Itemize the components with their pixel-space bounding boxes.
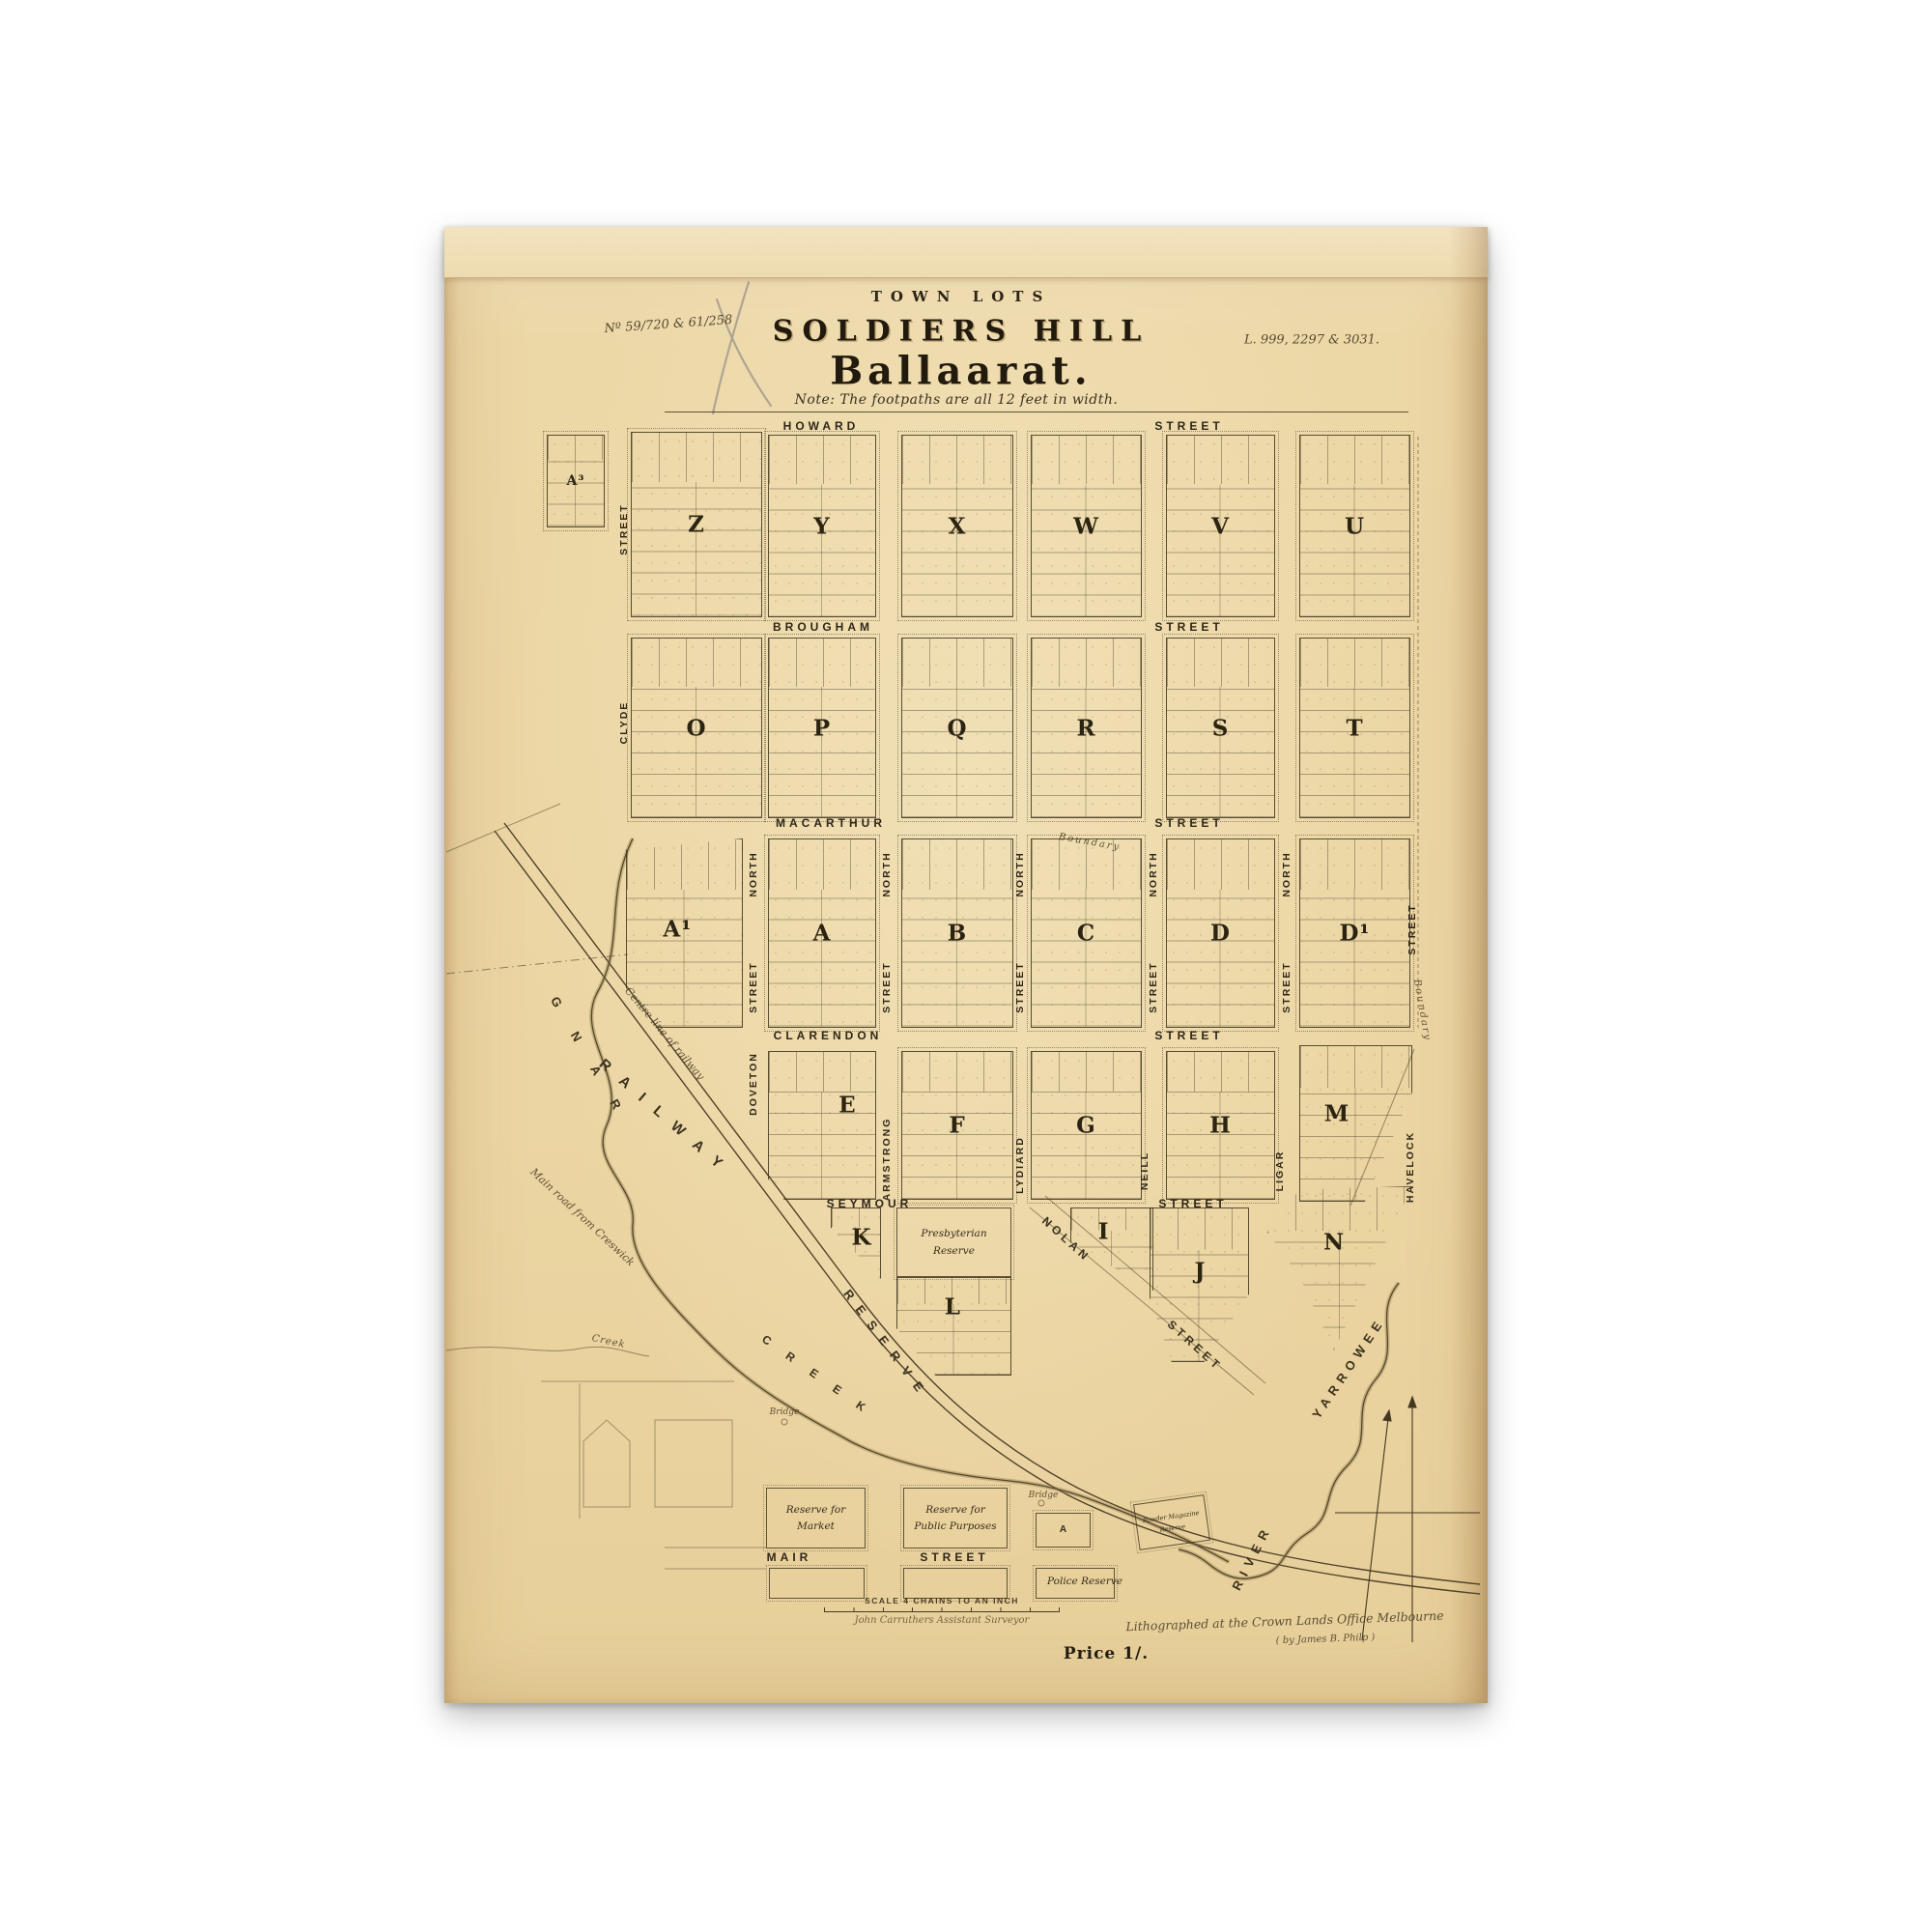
block-o: O (631, 638, 762, 818)
powder-magazine-reserve-label: Reserve (1159, 1521, 1186, 1535)
reserve-for-public-purposes: Reserve forPublic Purposes (903, 1488, 1008, 1548)
a-small-block: A (1036, 1513, 1091, 1548)
street-label-north-2: NORTH (881, 851, 893, 896)
reserve-for-public-purposes-label: Reserve for (925, 1502, 984, 1518)
block-letter-o: O (686, 715, 706, 741)
block-d: D (1166, 838, 1275, 1028)
block-letter-j: J (1195, 1258, 1207, 1284)
block-letter-v: V (1211, 513, 1230, 539)
street-label-street-v-1: STREET (748, 961, 759, 1012)
presbyterian-reserve-label: Presbyterian (921, 1226, 986, 1241)
presbyterian-reserve-label: Reserve (933, 1243, 975, 1259)
block-letter-s: S (1212, 715, 1230, 741)
block-h: H (1166, 1051, 1275, 1200)
block-e: E (768, 1051, 876, 1200)
block-y: Y (768, 435, 876, 617)
mair-block-3 (1036, 1568, 1115, 1599)
street-label-north-4: NORTH (1148, 851, 1159, 896)
block-letter-h: H (1209, 1113, 1232, 1139)
street-label-north-1: NORTH (748, 851, 759, 896)
block-a3: A³ (547, 435, 605, 527)
block-letter-c: C (1077, 921, 1095, 947)
reserve-for-market: Reserve forMarket (766, 1488, 866, 1548)
block-letter-q: Q (947, 715, 967, 741)
block-s: S (1166, 638, 1275, 818)
street-label-ligar: LIGAR (1274, 1151, 1286, 1192)
block-a: A (768, 838, 876, 1028)
street-label-seymour: SEYMOUR (827, 1197, 913, 1210)
thin-line-top-left (446, 804, 560, 852)
block-x: X (901, 435, 1013, 617)
a-small-block-label: A (1060, 1522, 1066, 1538)
block-v: V (1166, 435, 1275, 617)
block-letter-x: X (949, 513, 967, 539)
block-w: W (1031, 435, 1142, 617)
header-rule (665, 412, 1408, 412)
block-letter-a1: A¹ (663, 917, 692, 943)
block-u: U (1299, 435, 1410, 617)
block-letter-i: I (1098, 1218, 1110, 1244)
street-label-brougham-street-word: STREET (1154, 620, 1223, 634)
street-label-street-v-5: STREET (1281, 961, 1293, 1012)
survey-dash-line (446, 954, 628, 974)
scale-bar: SCALE 4 CHAINS TO AN INCH John Carruther… (824, 1596, 1060, 1626)
reserve-for-public-purposes-label: Public Purposes (914, 1519, 996, 1534)
price-label: Price 1/. (1064, 1644, 1149, 1663)
street-label-street-v-2: STREET (881, 961, 893, 1012)
reserve-for-market-label: Reserve for (786, 1502, 845, 1518)
street-label-seymour-street-word: STREET (1158, 1197, 1227, 1210)
north-arrow (1335, 1397, 1480, 1642)
street-label-clarendon-street-word: STREET (1154, 1029, 1223, 1042)
block-d1: D¹ (1299, 838, 1410, 1028)
surveyor-signature: John Carruthers Assistant Surveyor (824, 1615, 1060, 1626)
block-letter-a: A (813, 921, 832, 947)
block-r: R (1031, 638, 1142, 818)
block-letter-n: N (1323, 1230, 1345, 1256)
block-c: C (1031, 838, 1142, 1028)
street-label-mair: MAIR (767, 1550, 812, 1564)
street-label-havelock: HAVELOCK (1405, 1131, 1416, 1203)
block-letter-y: Y (813, 513, 830, 539)
street-label-north-3: NORTH (1014, 851, 1026, 896)
street-label-north-5: NORTH (1281, 851, 1293, 896)
street-label-neill: NEILL (1139, 1151, 1151, 1190)
block-letter-k: K (852, 1225, 872, 1251)
street-label-street-v-3: STREET (1014, 961, 1026, 1012)
block-letter-g: G (1076, 1113, 1096, 1139)
pencil-mark (713, 282, 771, 413)
block-b: B (901, 838, 1013, 1028)
map-title: SOLDIERS HILL (773, 315, 1150, 349)
block-p: P (768, 638, 876, 818)
street-label-macarthur: MACARTHUR (776, 816, 886, 830)
block-f: F (901, 1051, 1013, 1200)
street-label-howard-street-word: STREET (1154, 419, 1223, 433)
street-label-mair-street-word: STREET (920, 1550, 988, 1564)
label-bridge-2: Bridge (1029, 1491, 1059, 1500)
street-label-lydiard: LYDIARD (1014, 1136, 1026, 1194)
block-letter-b: B (948, 921, 967, 947)
label-bridge-1: Bridge (770, 1407, 800, 1417)
block-letter-l: L (945, 1294, 961, 1321)
footpath-note: Note: The footpaths are all 12 feet in w… (795, 392, 1119, 408)
block-letter-d1: D¹ (1339, 921, 1370, 947)
block-letter-e: E (838, 1092, 857, 1118)
mair-block-2 (903, 1568, 1008, 1599)
block-letter-r: R (1076, 715, 1095, 741)
block-letter-a3: A³ (567, 473, 585, 489)
block-t: T (1299, 638, 1410, 818)
street-label-street-v-4: STREET (1148, 961, 1159, 1012)
street-label-howard: HOWARD (783, 419, 860, 433)
street-label-armstrong: ARMSTRONG (881, 1118, 893, 1202)
map-subtitle: Ballaarat. (830, 349, 1092, 394)
street-label-macarthur-street-word: STREET (1154, 816, 1223, 830)
map-content: Nº 59/720 & 61/258 TOWN LOTS SOLDIERS HI… (0, 0, 1932, 1932)
block-letter-p: P (813, 715, 831, 741)
block-q: Q (901, 638, 1013, 818)
street-label-brougham: BROUGHAM (773, 620, 873, 634)
scale-bar-line (824, 1607, 1060, 1612)
reserve-for-market-label: Market (797, 1519, 835, 1534)
street-label-doveton: DOVETON (748, 1052, 759, 1116)
street-label-boundary-street-word: STREET (1406, 903, 1418, 954)
street-label-clyde-street-word: STREET (618, 503, 630, 554)
screenshot-canvas: Nº 59/720 & 61/258 TOWN LOTS SOLDIERS HI… (0, 0, 1932, 1932)
block-letter-t: T (1346, 715, 1363, 741)
mair-block-1 (769, 1568, 865, 1599)
block-letter-z: Z (688, 512, 705, 538)
bottom-left-lots (541, 1381, 766, 1569)
block-letter-w: W (1073, 513, 1099, 539)
block-letter-u: U (1345, 513, 1365, 539)
title-kicker: TOWN LOTS (871, 288, 1052, 305)
block-letter-d: D (1210, 921, 1231, 947)
presbyterian-reserve: PresbyterianReserve (896, 1207, 1011, 1277)
block-letter-f: F (949, 1113, 965, 1139)
street-label-clyde: CLYDE (618, 701, 630, 745)
block-z: Z (631, 432, 762, 617)
block-g: G (1031, 1051, 1142, 1200)
powder-magazine-reserve: Powder MagazineReserve (1133, 1494, 1210, 1550)
street-label-clarendon: CLARENDON (774, 1029, 883, 1042)
block-letter-m: M (1324, 1101, 1350, 1127)
reference-number-right: L. 999, 2297 & 3031. (1244, 333, 1379, 348)
